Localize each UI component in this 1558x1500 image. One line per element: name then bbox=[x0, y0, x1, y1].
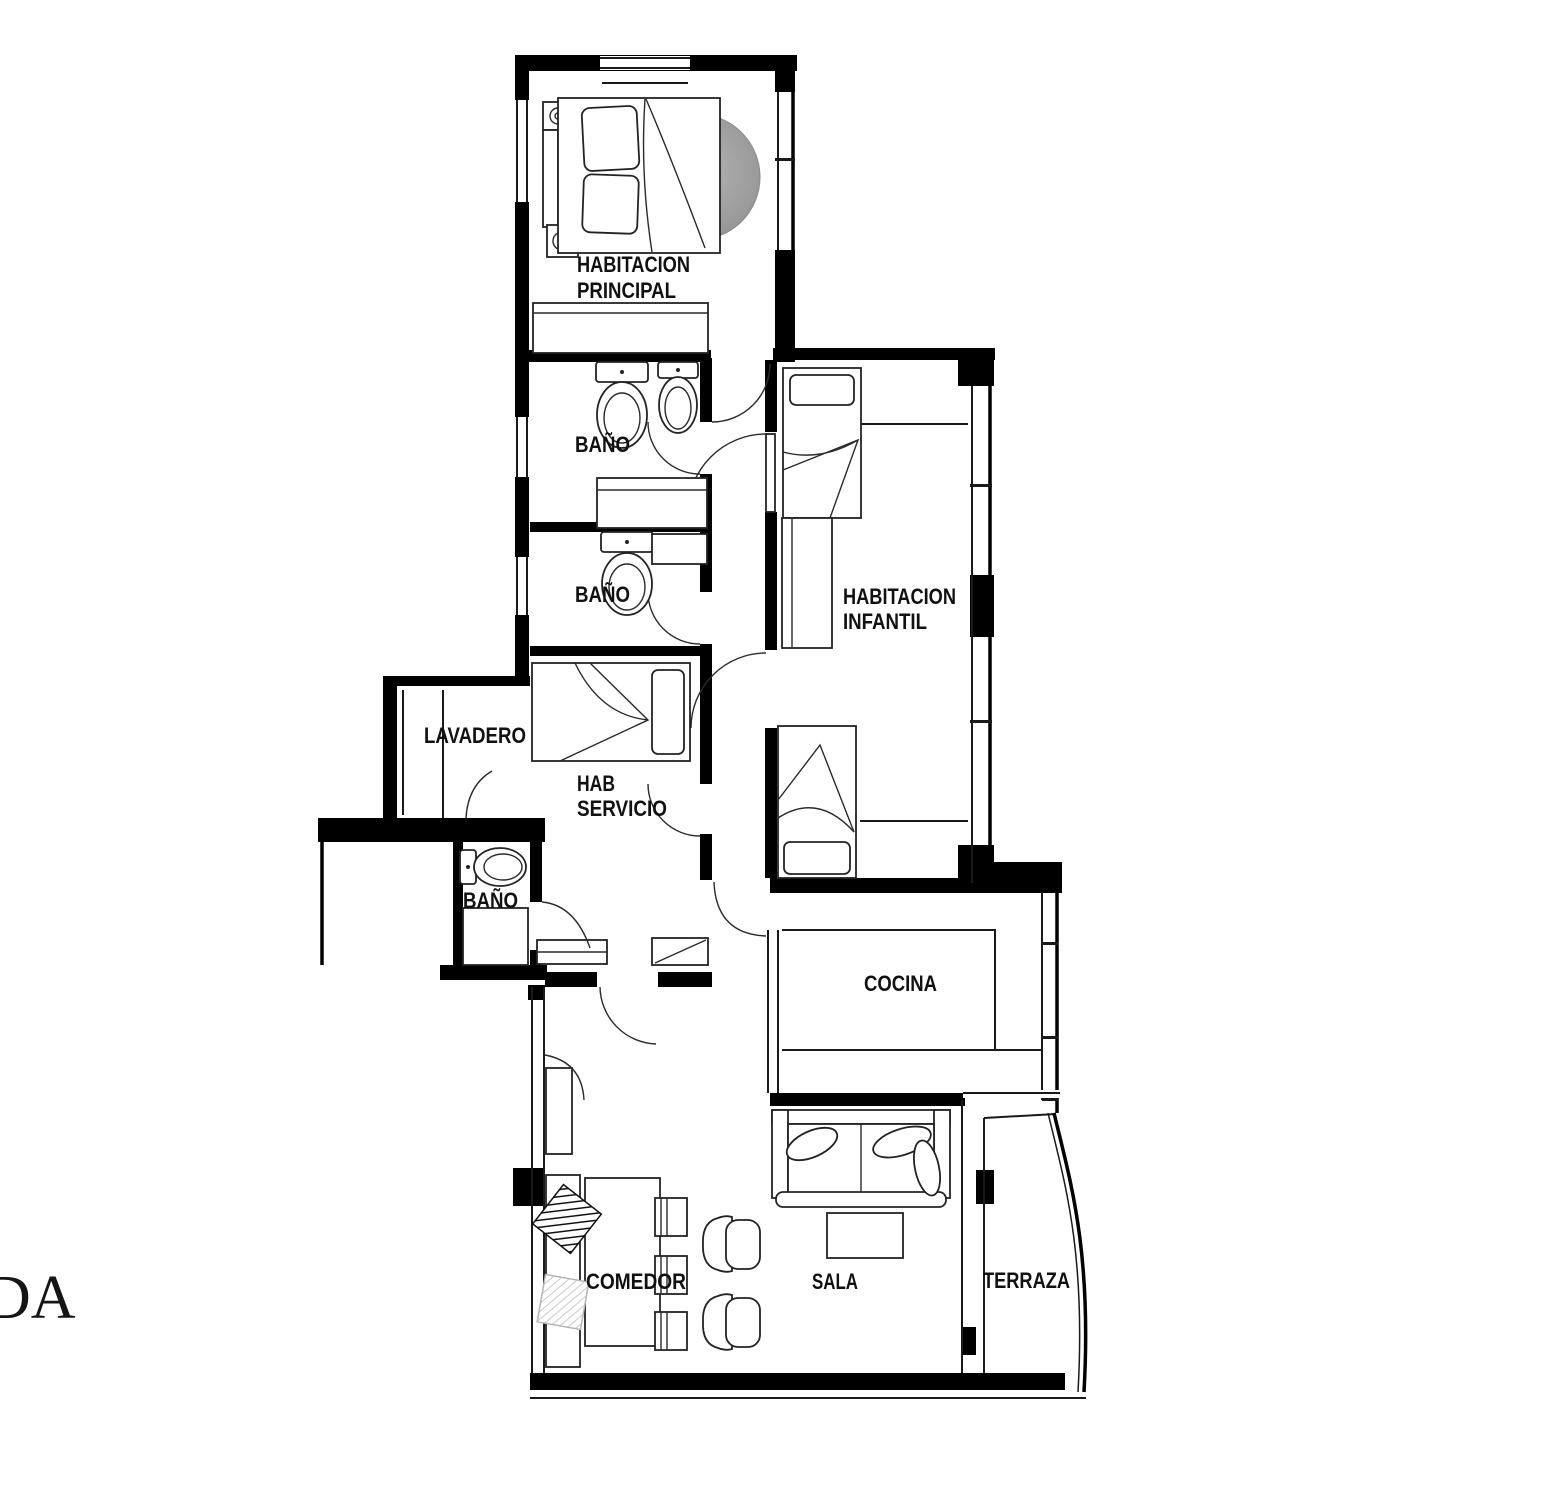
floor-plan-canvas: HABITACION PRINCIPAL BAÑO BAÑO HABITACIO… bbox=[0, 0, 1558, 1500]
single-bed-icon bbox=[532, 663, 690, 761]
counter-icon bbox=[652, 534, 707, 564]
sofa-icon bbox=[772, 1110, 950, 1207]
armchair-icon bbox=[703, 1216, 760, 1272]
door-arc-icon bbox=[648, 592, 700, 644]
floor-plan-page: HABITACION PRINCIPAL BAÑO BAÑO HABITACIO… bbox=[0, 0, 1558, 1500]
room-label-lavadero: LAVADERO bbox=[424, 723, 526, 748]
room-label-hab-servicio: HAB bbox=[577, 771, 615, 796]
room-label-bano-servicio: BAÑO bbox=[463, 888, 518, 913]
single-bed-icon bbox=[778, 726, 856, 878]
shower-icon bbox=[463, 908, 528, 965]
closet-icon bbox=[782, 518, 832, 648]
single-bed-icon bbox=[783, 368, 861, 518]
room-label-habitacion-principal: HABITACION bbox=[577, 252, 690, 277]
room-label-habitacion-infantil: INFANTIL bbox=[843, 609, 927, 634]
room-label-terraza: TERRAZA bbox=[983, 1268, 1070, 1293]
door-arc-icon bbox=[600, 987, 656, 1044]
toilet-icon bbox=[460, 848, 526, 886]
room-label-cocina: COCINA bbox=[864, 971, 937, 996]
room-label-hab-servicio: SERVICIO bbox=[577, 796, 667, 821]
door-leaf-icon bbox=[766, 434, 775, 512]
door-arc-icon bbox=[466, 771, 492, 818]
dining-table-icon bbox=[585, 1178, 660, 1346]
dining-chair-icon bbox=[655, 1198, 687, 1236]
room-label-habitacion-infantil: HABITACION bbox=[843, 584, 956, 609]
door-arc-icon bbox=[712, 364, 770, 422]
bidet-icon bbox=[658, 362, 698, 433]
double-bed-icon bbox=[543, 98, 720, 257]
room-label-habitacion-principal: PRINCIPAL bbox=[577, 278, 676, 303]
cushion-icon bbox=[537, 1275, 589, 1330]
corner-text-fragment: DA bbox=[0, 1264, 76, 1332]
room-label-bano-secundario: BAÑO bbox=[575, 582, 630, 607]
room-label-comedor: COMEDOR bbox=[586, 1269, 686, 1294]
furniture bbox=[460, 98, 1041, 1350]
room-label-bano-principal: BAÑO bbox=[575, 432, 630, 457]
coffee-table-icon bbox=[827, 1213, 903, 1258]
door-arc-icon bbox=[714, 882, 766, 936]
wardrobe-icon bbox=[533, 303, 708, 353]
vanity-counter-icon bbox=[597, 478, 707, 528]
armchair-icon bbox=[703, 1294, 760, 1350]
room-label-sala: SALA bbox=[812, 1269, 858, 1294]
dining-chair-icon bbox=[655, 1312, 687, 1350]
